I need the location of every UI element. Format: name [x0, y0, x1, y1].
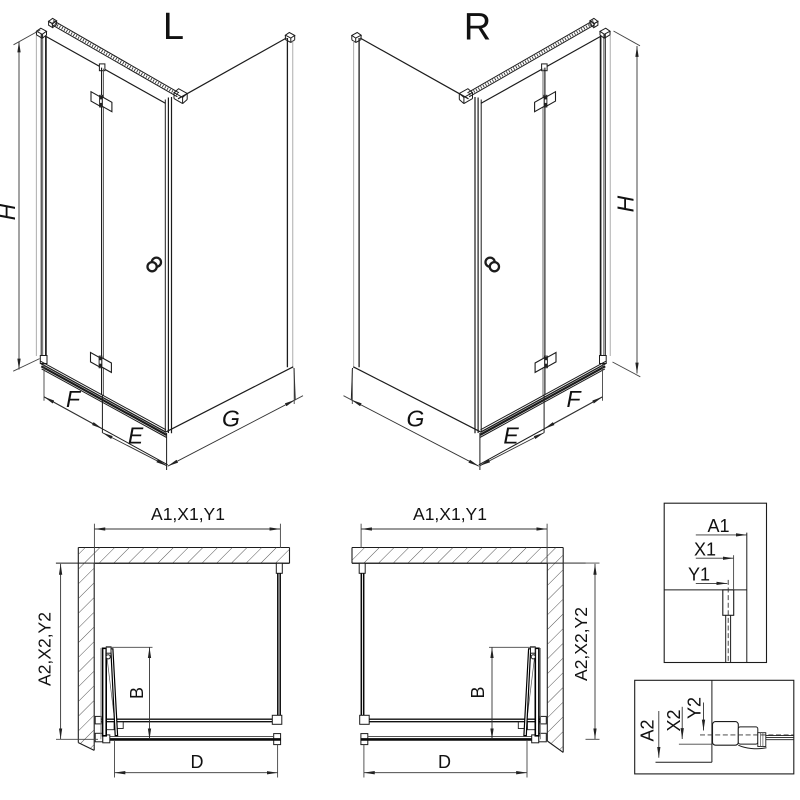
svg-text:E: E — [503, 423, 519, 449]
svg-text:A1,X1,Y1: A1,X1,Y1 — [151, 504, 225, 524]
svg-text:X2: X2 — [664, 709, 684, 731]
svg-text:H: H — [0, 203, 20, 220]
svg-text:G: G — [407, 406, 425, 432]
svg-text:A2,X2,Y2: A2,X2,Y2 — [35, 612, 55, 686]
svg-text:E: E — [128, 423, 144, 449]
svg-text:A2,X2,Y2: A2,X2,Y2 — [571, 607, 591, 681]
svg-text:F: F — [566, 386, 582, 412]
svg-text:Y2: Y2 — [685, 697, 705, 719]
svg-text:B: B — [127, 687, 147, 699]
svg-text:F: F — [66, 386, 82, 412]
svg-text:H: H — [613, 195, 639, 212]
svg-text:A1,X1,Y1: A1,X1,Y1 — [413, 504, 487, 524]
svg-text:X1: X1 — [694, 539, 716, 559]
svg-text:R: R — [464, 7, 491, 49]
svg-text:A2: A2 — [638, 719, 658, 741]
svg-text:L: L — [163, 6, 184, 48]
svg-text:G: G — [222, 406, 240, 432]
svg-text:D: D — [191, 752, 204, 772]
svg-text:B: B — [468, 686, 488, 698]
svg-text:A1: A1 — [707, 516, 729, 536]
svg-text:Y1: Y1 — [688, 565, 710, 585]
svg-text:D: D — [438, 752, 451, 772]
